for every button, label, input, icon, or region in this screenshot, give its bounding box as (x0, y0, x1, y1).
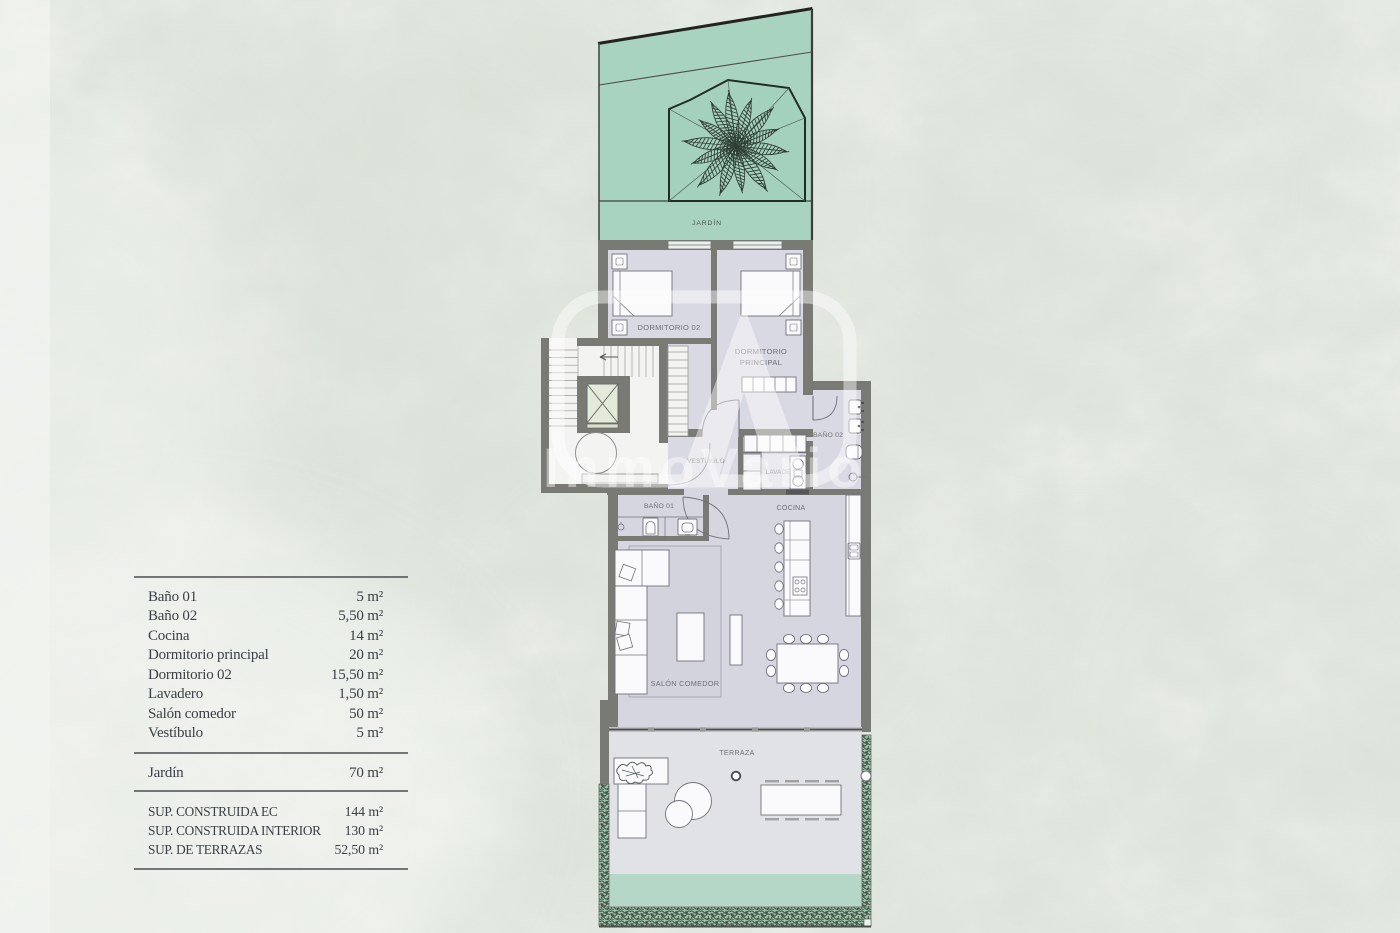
svg-text:1,50 m²: 1,50 m² (338, 686, 383, 702)
svg-text:144 m²: 144 m² (345, 804, 383, 819)
svg-text:InmoVario: InmoVario (543, 436, 868, 499)
svg-text:SUP. CONSTRUIDA INTERIOR: SUP. CONSTRUIDA INTERIOR (148, 823, 321, 838)
svg-text:5 m²: 5 m² (356, 589, 383, 605)
svg-text:Vestíbulo: Vestíbulo (148, 725, 203, 741)
svg-text:130 m²: 130 m² (345, 823, 383, 838)
svg-text:JARDÍN: JARDÍN (692, 218, 722, 227)
svg-text:20 m²: 20 m² (349, 647, 384, 663)
svg-text:50 m²: 50 m² (349, 706, 384, 722)
svg-text:14 m²: 14 m² (349, 628, 384, 644)
svg-text:SUP. DE TERRAZAS: SUP. DE TERRAZAS (148, 842, 262, 857)
svg-text:52,50 m²: 52,50 m² (334, 842, 383, 857)
svg-text:Jardín: Jardín (148, 765, 184, 781)
svg-text:Baño 01: Baño 01 (148, 589, 197, 605)
svg-text:Dormitorio principal: Dormitorio principal (148, 647, 269, 663)
svg-text:TERRAZA: TERRAZA (719, 750, 754, 757)
svg-text:Cocina: Cocina (148, 628, 190, 644)
svg-text:5 m²: 5 m² (356, 725, 383, 741)
svg-text:Lavadero: Lavadero (148, 686, 203, 702)
svg-text:DORMITORIO 02: DORMITORIO 02 (638, 323, 701, 332)
svg-text:70 m²: 70 m² (349, 765, 384, 781)
svg-text:Dormitorio 02: Dormitorio 02 (148, 667, 232, 683)
svg-text:SALÓN COMEDOR: SALÓN COMEDOR (651, 679, 720, 688)
svg-text:15,50 m²: 15,50 m² (331, 667, 384, 683)
svg-text:SUP. CONSTRUIDA EC: SUP. CONSTRUIDA EC (148, 804, 278, 819)
svg-text:Salón comedor: Salón comedor (148, 706, 236, 722)
svg-text:BAÑO 01: BAÑO 01 (644, 501, 674, 510)
svg-text:Baño 02: Baño 02 (148, 608, 197, 624)
svg-text:COCINA: COCINA (776, 505, 805, 512)
svg-text:5,50 m²: 5,50 m² (338, 608, 383, 624)
